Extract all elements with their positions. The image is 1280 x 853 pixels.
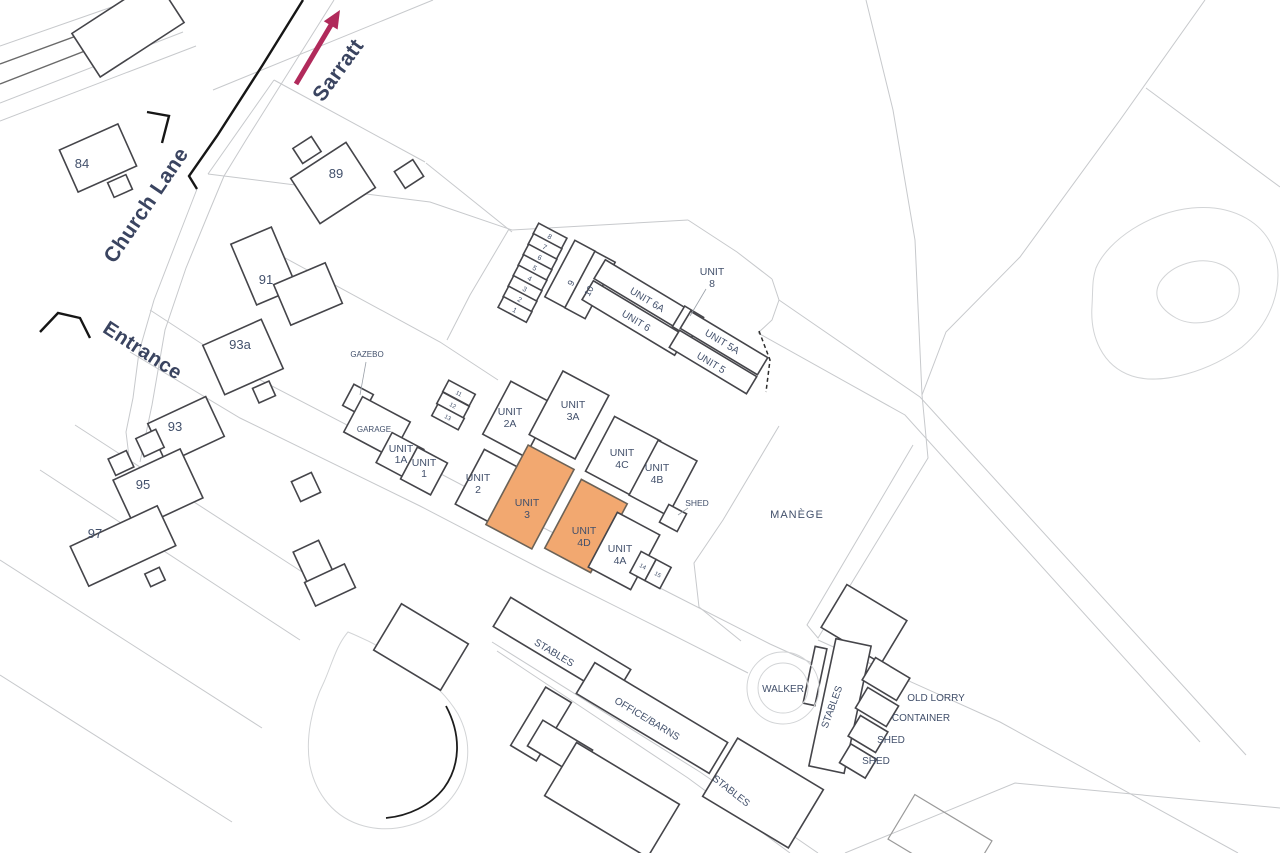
barn-building (374, 604, 469, 690)
building-93 (148, 397, 225, 464)
unit-8-label-line1: UNIT (700, 266, 725, 278)
boundary-line (845, 783, 1280, 853)
shed-label: SHED (685, 498, 709, 508)
unit-3-label-line2: 3 (524, 509, 530, 521)
boundary-building-partial (888, 795, 992, 853)
house-number-89: 89 (329, 166, 343, 181)
site-plan: Church Lane Sarratt Entrance 84 89 91 93… (0, 0, 1280, 853)
garage-label: GARAGE (357, 425, 391, 434)
entrance-label: Entrance (99, 317, 186, 384)
outbuilding-small (291, 472, 320, 501)
house-number-93: 93 (168, 419, 182, 434)
boundary-line (208, 80, 274, 174)
house-number-91: 91 (259, 272, 273, 287)
boundary-line (0, 675, 232, 822)
kerb-detail (40, 313, 90, 338)
unit-4b-label-line1: UNIT (645, 462, 670, 474)
container-label: CONTAINER (892, 713, 950, 724)
pond-outline (1092, 207, 1278, 379)
unit-4d-label-line2: 4D (577, 537, 591, 549)
boundary-line (758, 279, 779, 333)
unit-4a-label-line2: 4A (614, 555, 627, 567)
site-north-boundary (208, 174, 688, 230)
boundary-line (0, 560, 262, 728)
building-89-wing (293, 136, 321, 163)
house-number-97: 97 (88, 526, 102, 541)
unit-4b-label-line2: 4B (651, 474, 664, 486)
manege-label: MANÈGE (770, 508, 824, 521)
boundary-line (426, 163, 512, 232)
unit-1a-label-line2: 1A (395, 454, 408, 466)
shed-2-label: SHED (862, 756, 890, 767)
unit-3a-label-line2: 3A (567, 411, 580, 423)
boundary-line (866, 0, 922, 395)
gazebo-label: GAZEBO (350, 350, 383, 359)
unit-2a-label-line1: UNIT (498, 406, 523, 418)
unit-1-label-line2: 1 (421, 468, 427, 480)
unit-2-label-line1: UNIT (466, 472, 491, 484)
unit-8-leader (690, 289, 706, 316)
unit-4d-label-line1: UNIT (572, 525, 597, 537)
house-number-95: 95 (136, 477, 150, 492)
unit-8-label-line2: 8 (709, 278, 715, 290)
kerb-detail (147, 112, 169, 143)
walker-label: WALKER (762, 684, 804, 695)
unit-3a-label-line1: UNIT (561, 399, 586, 411)
unit-4c-label-line1: UNIT (610, 447, 635, 459)
pond-southwest-dark-arc (386, 706, 457, 818)
pond-inner-outline (1157, 261, 1239, 323)
shed-1-label: SHED (877, 735, 905, 746)
building-93a (203, 319, 283, 394)
unit-4c-label-line2: 4C (615, 459, 629, 471)
unit-2a-label-line2: 2A (504, 418, 517, 430)
track-south-edge (758, 333, 1200, 742)
house-number-84: 84 (75, 156, 89, 171)
unit-2-label-line2: 2 (475, 484, 481, 496)
unit-3-label-line1: UNIT (515, 497, 540, 509)
unit-4a-label-line1: UNIT (608, 543, 633, 555)
boundary-line (1146, 88, 1280, 187)
house-number-93a: 93a (229, 337, 251, 352)
old-lorry-label: OLD LORRY (907, 693, 965, 704)
church-lane-west-edge (189, 0, 303, 189)
manege-west-edge (694, 426, 779, 641)
boundary-line (922, 0, 1205, 395)
boundary-line (447, 229, 509, 340)
building-97-porch (145, 567, 165, 586)
outbuilding-small (394, 160, 423, 189)
unit-buildings (343, 223, 768, 589)
building-93a-wing (253, 381, 276, 403)
